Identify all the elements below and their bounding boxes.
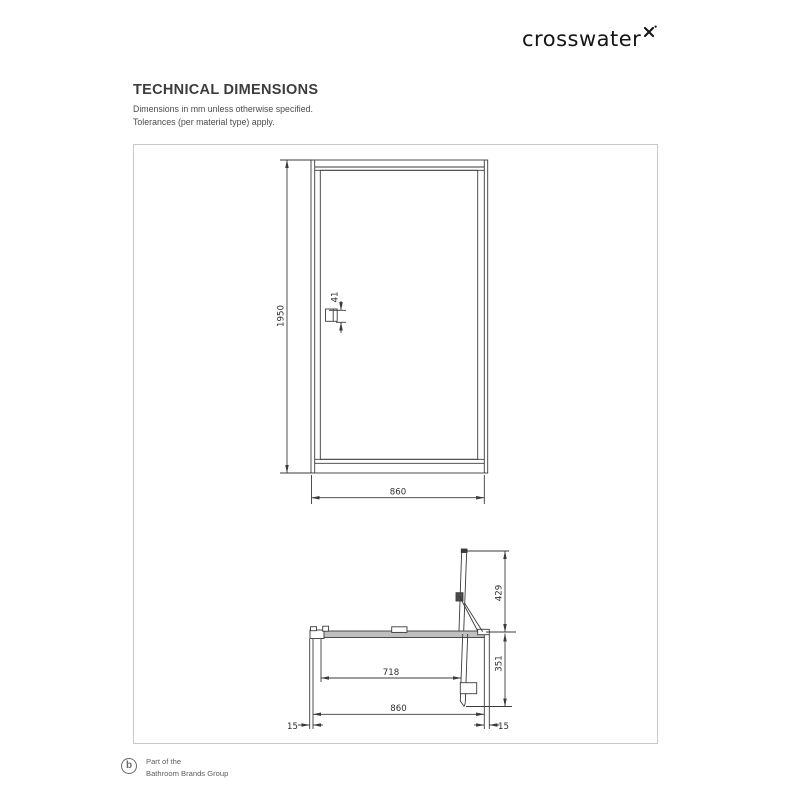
dim-label-plan-wall-right: 15 <box>498 722 509 732</box>
dim-label-front-height: 1950 <box>277 305 287 327</box>
technical-drawing-sheet: 1950 41 860 429 351 718 860 15 15 <box>133 144 658 744</box>
footer-text: Part of the Bathroom Brands Group <box>146 756 228 779</box>
dim-label-front-width: 860 <box>390 488 406 498</box>
dim-label-plan-door-open: 429 <box>495 585 505 601</box>
footer-line2: Bathroom Brands Group <box>146 768 228 780</box>
bathroom-brands-icon: b <box>121 758 137 774</box>
technical-drawing: 1950 41 860 429 351 718 860 15 15 <box>134 145 657 743</box>
plan-handle <box>460 683 476 694</box>
plan-door-open <box>456 549 483 632</box>
tolerances-note: Tolerances (per material type) apply. <box>133 117 275 127</box>
crosswater-x-icon <box>642 24 658 45</box>
front-handle <box>326 309 338 321</box>
front-view <box>311 160 488 473</box>
dim-label-plan-width: 860 <box>390 704 406 714</box>
footer: b Part of the Bathroom Brands Group <box>121 756 228 779</box>
dim-plan-door-open <box>467 551 516 632</box>
plan-centre-clamp <box>392 627 407 633</box>
brand-wordmark: crosswater <box>522 26 641 52</box>
footer-line1: Part of the <box>146 756 228 768</box>
dim-label-plan-depth: 351 <box>495 655 505 671</box>
plan-door-swing <box>460 634 476 707</box>
dim-label-plan-wall-left: 15 <box>287 722 298 732</box>
front-glass-panel <box>320 170 477 459</box>
dim-label-plan-opening: 718 <box>383 668 399 678</box>
plan-view <box>310 549 489 707</box>
page-title: TECHNICAL DIMENSIONS <box>133 82 318 98</box>
dimensions-note: Dimensions in mm unless otherwise specif… <box>133 104 313 114</box>
dim-label-front-handle: 41 <box>331 292 341 303</box>
brand-logo: crosswater <box>522 26 658 52</box>
